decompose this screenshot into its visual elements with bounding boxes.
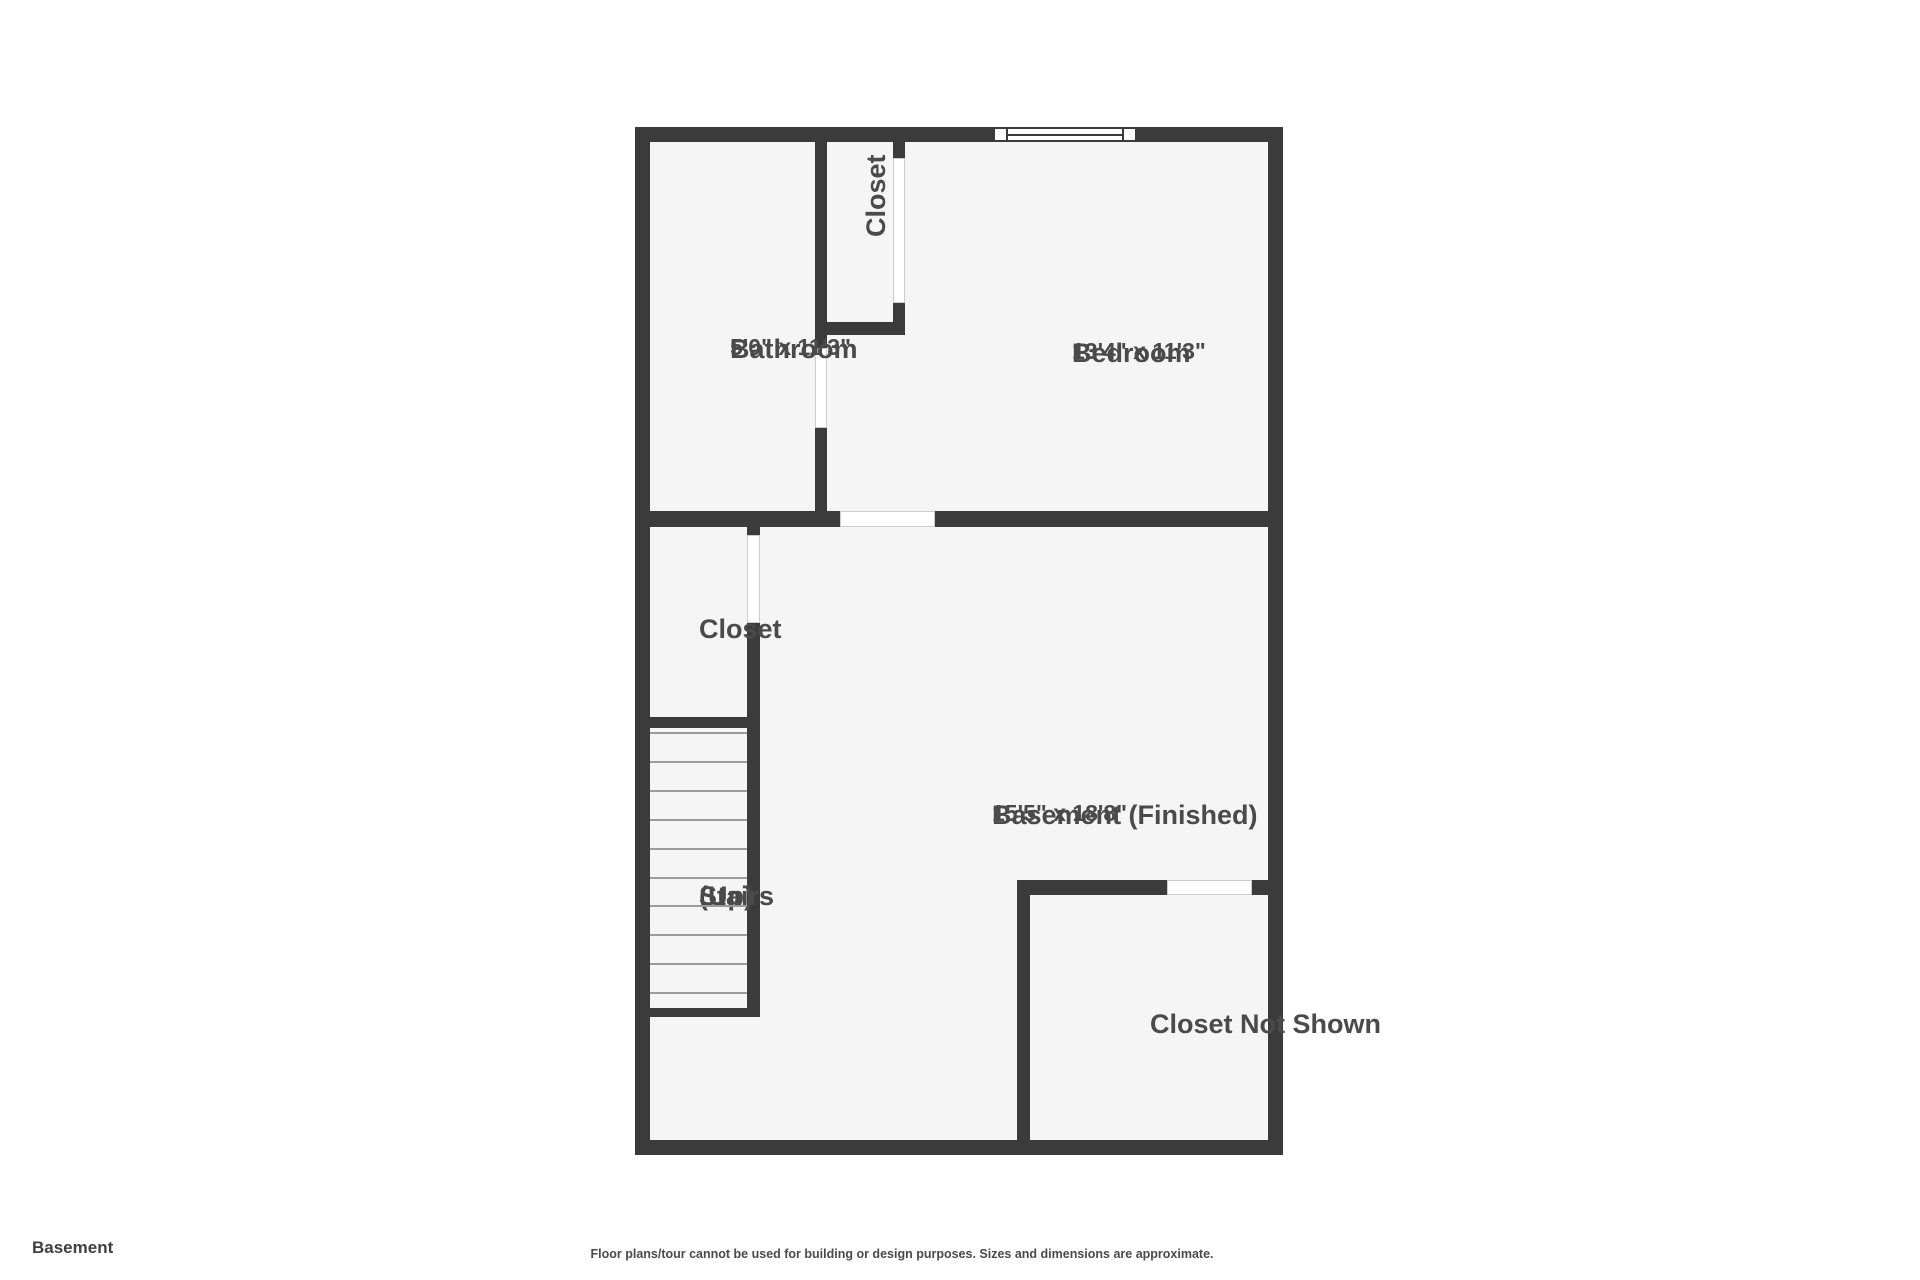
wall-closet-not-shown-left bbox=[1017, 880, 1030, 1140]
window-symbol bbox=[995, 127, 1135, 142]
floor-title: Basement bbox=[32, 1238, 113, 1258]
room-dimensions: 15'5" x 18'8" bbox=[992, 799, 1127, 827]
stair-tread-line bbox=[650, 905, 747, 907]
room-name: Closet bbox=[699, 613, 782, 646]
disclaimer-text: Floor plans/tour cannot be used for buil… bbox=[590, 1247, 1213, 1261]
room-dimensions: 13'4" x 11'3" bbox=[1072, 337, 1206, 365]
room-name-qualifier: (Up) bbox=[699, 880, 753, 913]
stair-tread-line bbox=[650, 963, 747, 965]
stair-tread-line bbox=[650, 819, 747, 821]
stair-tread-line bbox=[650, 732, 747, 734]
room-dimensions: 5'0" x 11'3" bbox=[730, 333, 851, 361]
wall-mid-closet-right-upper bbox=[747, 527, 760, 535]
wall-bathroom-divider-lower bbox=[815, 428, 827, 511]
room-name: Closet bbox=[860, 154, 893, 237]
wall-closet-not-shown-top-right bbox=[1252, 880, 1268, 895]
wall-closet-not-shown-top-left bbox=[1017, 880, 1167, 895]
wall-bathroom-divider-upper bbox=[815, 142, 827, 348]
stair-tread-line bbox=[650, 877, 747, 879]
door-opening-bedroom bbox=[840, 511, 935, 527]
stair-tread-line bbox=[650, 761, 747, 763]
door-opening-closet-not-shown bbox=[1167, 880, 1252, 895]
wall-basement-divider-left bbox=[650, 511, 840, 527]
stair-tread-line bbox=[650, 934, 747, 936]
wall-stairs-right bbox=[747, 728, 760, 1017]
room-name: Closet Not Shown bbox=[1150, 1008, 1381, 1041]
door-opening-top-closet bbox=[893, 158, 905, 303]
floor-plan: Bathroom 5'0" x 11'3" Closet Bedroom 13'… bbox=[635, 127, 1283, 1155]
wall-stairs-bottom bbox=[650, 1008, 760, 1017]
wall-mid-closet-bottom bbox=[650, 717, 760, 728]
stair-tread-line bbox=[650, 848, 747, 850]
wall-basement-divider-right bbox=[935, 511, 1268, 527]
stair-tread-line bbox=[650, 992, 747, 994]
door-opening-mid-closet bbox=[747, 535, 760, 623]
window-center-line bbox=[1007, 134, 1123, 136]
stair-tread-line bbox=[650, 790, 747, 792]
wall-top-closet-right-upper bbox=[893, 142, 905, 158]
